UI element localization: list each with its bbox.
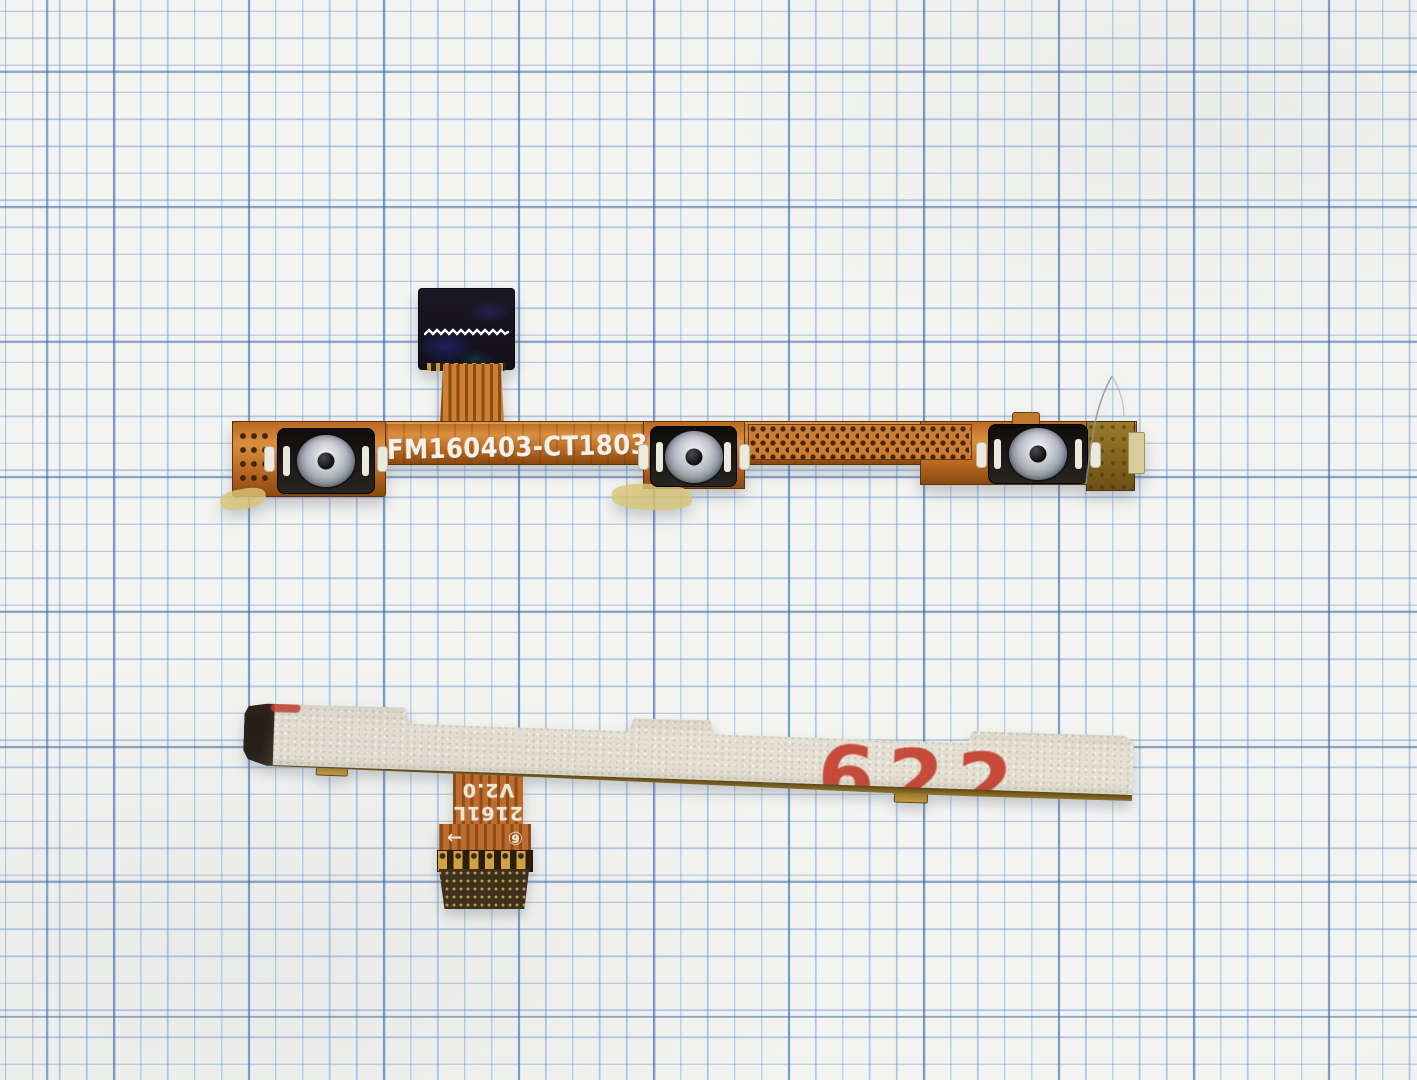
solder-castellation bbox=[739, 444, 750, 470]
solder-castellation bbox=[264, 446, 275, 472]
solder-castellation bbox=[638, 444, 649, 470]
front-flex-cable: FM160403-CT1803M bbox=[0, 0, 1417, 1080]
stray-fiber bbox=[1050, 372, 1140, 492]
metal-dome bbox=[297, 435, 355, 487]
part-number-text: FM160403-CT1803M bbox=[387, 430, 673, 466]
neck-ribbon bbox=[440, 364, 504, 424]
button-switch-middle bbox=[650, 426, 737, 487]
button-switch-left bbox=[277, 428, 375, 494]
kapton-flap bbox=[219, 485, 268, 513]
zigzag-contact-line bbox=[424, 327, 510, 337]
metal-dome bbox=[665, 431, 723, 483]
solder-castellation bbox=[976, 442, 987, 468]
board-connector bbox=[418, 288, 515, 370]
solder-castellation bbox=[377, 446, 388, 472]
photo-stage: 2161L V2.0 ⑥ → 622 bbox=[0, 0, 1417, 1080]
copper-mesh-section bbox=[748, 424, 972, 460]
